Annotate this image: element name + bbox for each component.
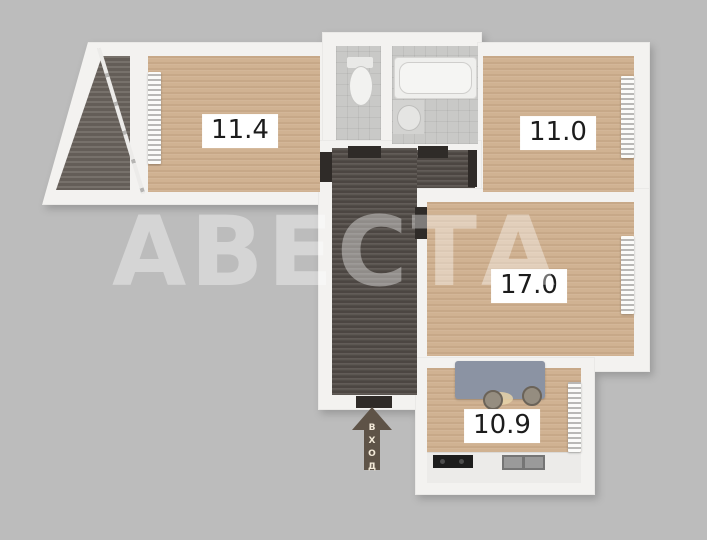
sink-basin xyxy=(504,457,522,468)
area-label-kitchen: 10.9 xyxy=(464,409,540,443)
radiator-room-top-right xyxy=(621,76,634,158)
stove-burner xyxy=(459,459,464,464)
entrance-label: ВХОД xyxy=(367,423,377,475)
room-middle-right-door xyxy=(415,207,427,239)
radiator-room-top-left xyxy=(148,72,161,164)
area-label-room-middle-right: 17.0 xyxy=(491,269,567,303)
area-label-room-top-right: 11.0 xyxy=(520,116,596,150)
hallway-floor xyxy=(332,148,417,395)
kitchen-chair xyxy=(483,390,503,410)
stove-burner xyxy=(440,459,445,464)
entrance-arrow-icon: ВХОД xyxy=(352,407,392,470)
radiator-kitchen xyxy=(568,382,581,452)
wc-door xyxy=(348,146,381,158)
bathtub-icon xyxy=(394,57,477,99)
kitchen-chair xyxy=(522,386,542,406)
bathtub-basin xyxy=(399,62,472,94)
bathroom-door xyxy=(418,146,448,158)
stove-icon xyxy=(433,455,473,468)
bathroom-sink-icon xyxy=(397,105,421,131)
floor-plan-canvas: 11.4 11.0 17.0 10.9 ВХОД АВЕСТА xyxy=(0,0,707,540)
toilet-icon xyxy=(349,66,373,106)
sink-basin xyxy=(525,457,543,468)
kitchen-sink-icon xyxy=(502,455,545,470)
room-top-right-door-leaf xyxy=(468,150,477,187)
area-label-room-top-left: 11.4 xyxy=(202,114,278,148)
room-top-left-door xyxy=(320,152,332,182)
radiator-room-middle-right xyxy=(621,236,634,314)
